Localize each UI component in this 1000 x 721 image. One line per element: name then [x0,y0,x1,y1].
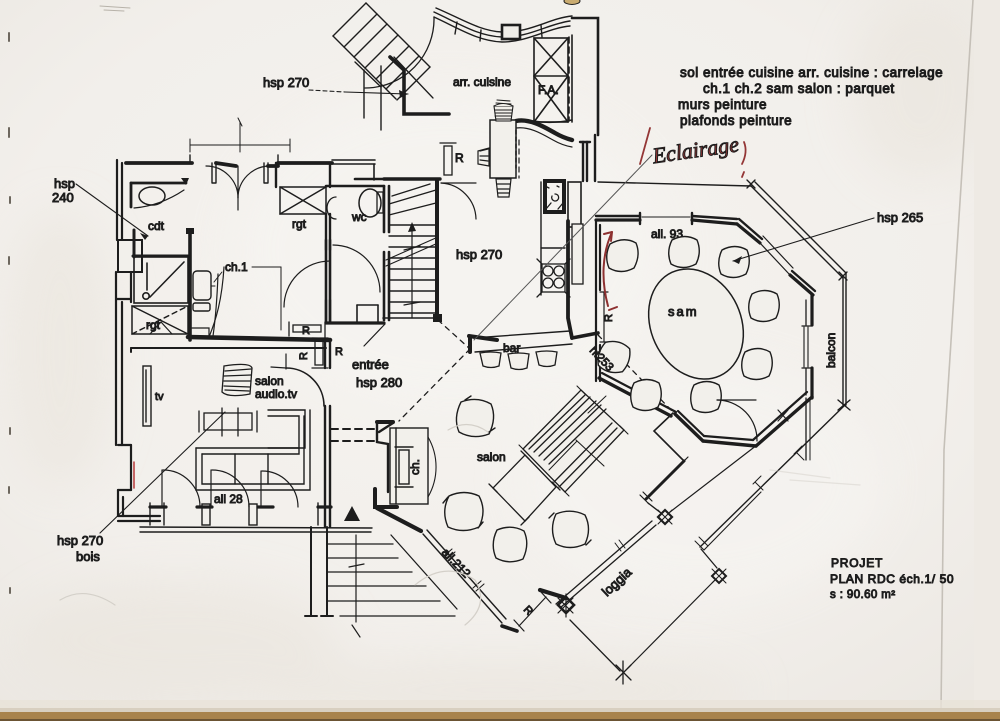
svg-text:hsp 280: hsp 280 [356,375,402,390]
svg-text:ch.1 ch.2 sam salon : parquet: ch.1 ch.2 sam salon : parquet [703,81,895,96]
svg-text:audio.tv: audio.tv [255,387,297,401]
svg-text:R: R [298,352,310,360]
svg-text:wc: wc [351,210,367,224]
svg-text:s : 90.60 m²: s : 90.60 m² [830,589,896,601]
svg-text:hsp 270: hsp 270 [263,75,309,90]
svg-text:rgt: rgt [146,318,161,332]
svg-text:plafonds peinture: plafonds peinture [680,113,792,128]
svg-text:sol entrée cuisine arr. cuisin: sol entrée cuisine arr. cuisine : carrel… [680,65,943,80]
svg-text:salon: salon [255,374,284,388]
svg-text:all 28: all 28 [214,492,243,506]
svg-text:R: R [603,314,615,322]
svg-text:R: R [455,151,464,165]
svg-text:arr. cuisine: arr. cuisine [453,75,511,89]
svg-text:entrée: entrée [352,357,389,372]
svg-text:PROJET: PROJET [831,556,883,570]
svg-text:R: R [302,325,310,337]
svg-text:rgt: rgt [292,217,307,231]
svg-text:hsp 270: hsp 270 [57,533,103,548]
svg-text:bois: bois [76,549,100,564]
svg-text:hsp 270: hsp 270 [456,247,502,262]
svg-text:PLAN RDC éch.1/ 50: PLAN RDC éch.1/ 50 [830,572,954,586]
svg-text:F.A.: F.A. [538,83,559,97]
svg-text:ch.: ch. [408,459,422,475]
svg-text:hsp: hsp [54,176,75,191]
svg-text:murs peinture: murs peinture [678,97,767,112]
svg-text:R: R [335,346,343,358]
svg-text:hsp 265: hsp 265 [877,210,923,225]
svg-text:tv: tv [155,391,164,403]
svg-text:cdt: cdt [148,219,165,233]
svg-text:sam: sam [668,304,699,319]
svg-text:salon: salon [477,450,506,464]
svg-text:ch.1: ch.1 [225,260,248,274]
svg-text:balcon: balcon [824,333,838,368]
svg-text:240: 240 [52,190,74,205]
